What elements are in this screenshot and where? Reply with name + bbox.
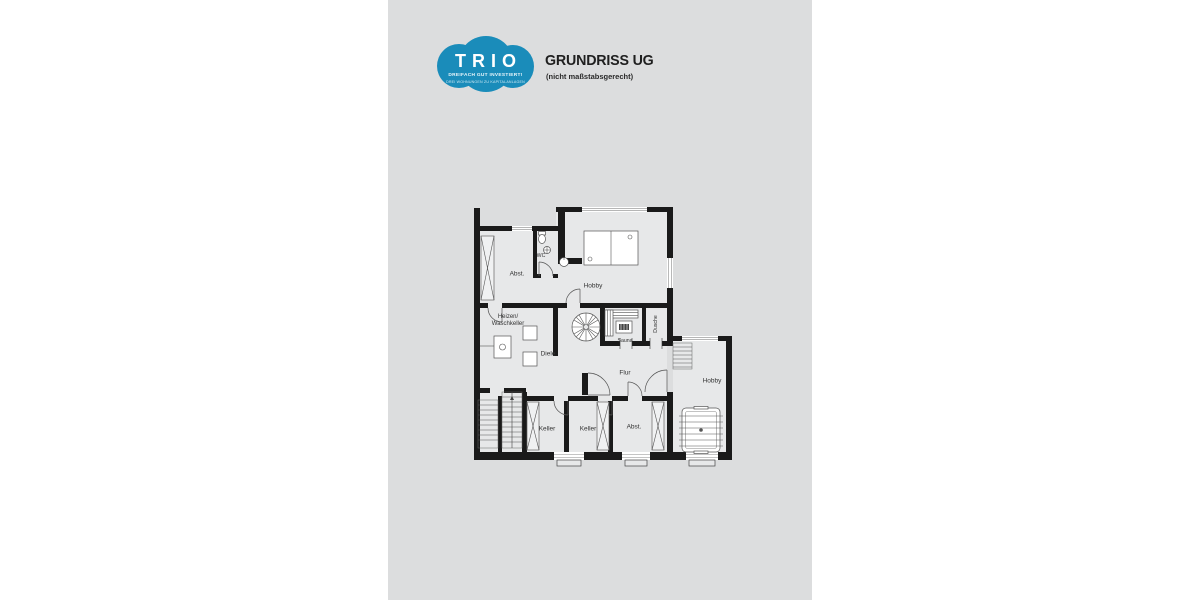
floorplan: Abst. WC Hobby Heizen/ Waschkeller Diele… — [470, 196, 738, 472]
room-label-abst-nw: Abst. — [510, 270, 525, 277]
spiral-staircase-icon — [572, 313, 600, 341]
room-label-hobby-right: Hobby — [703, 377, 722, 384]
logo-tagline-1: DREIFACH GUT INVESTIERT! — [437, 73, 534, 78]
room-label-heizen-waschkeller: Heizen/ Waschkeller — [492, 314, 524, 328]
room-label-diele: Diele — [541, 350, 556, 357]
room-label-wc: WC — [537, 254, 546, 260]
sauna-heater-icon — [616, 321, 632, 333]
room-label-dusche: Dusche — [654, 315, 660, 333]
foosball-table-icon — [679, 407, 723, 454]
document-page: TRIO DREIFACH GUT INVESTIERT! DREI WOHNU… — [388, 0, 812, 600]
room-label-flur: Flur — [619, 369, 630, 376]
page-subtitle: (nicht maßstabsgerecht) — [546, 72, 633, 81]
trio-logo: TRIO DREIFACH GUT INVESTIERT! DREI WOHNU… — [437, 36, 534, 92]
page-title: GRUNDRISS UG — [545, 52, 654, 69]
lamp-icon — [560, 258, 569, 267]
toilet-icon — [539, 232, 546, 244]
room-label-abst-s: Abst. — [627, 423, 642, 430]
floorplan-drawing — [470, 196, 738, 472]
logo-brand-text: TRIO — [437, 51, 534, 72]
room-label-keller-1: Keller — [539, 425, 556, 432]
bed-icon — [584, 231, 638, 265]
room-label-sauna: Sauna — [617, 339, 632, 345]
room-label-keller-2: Keller — [580, 425, 597, 432]
room-label-hobby-top: Hobby — [584, 282, 603, 289]
logo-tagline-2: DREI WOHNUNGEN ZU KAPITALANLAGEN — [437, 80, 534, 84]
